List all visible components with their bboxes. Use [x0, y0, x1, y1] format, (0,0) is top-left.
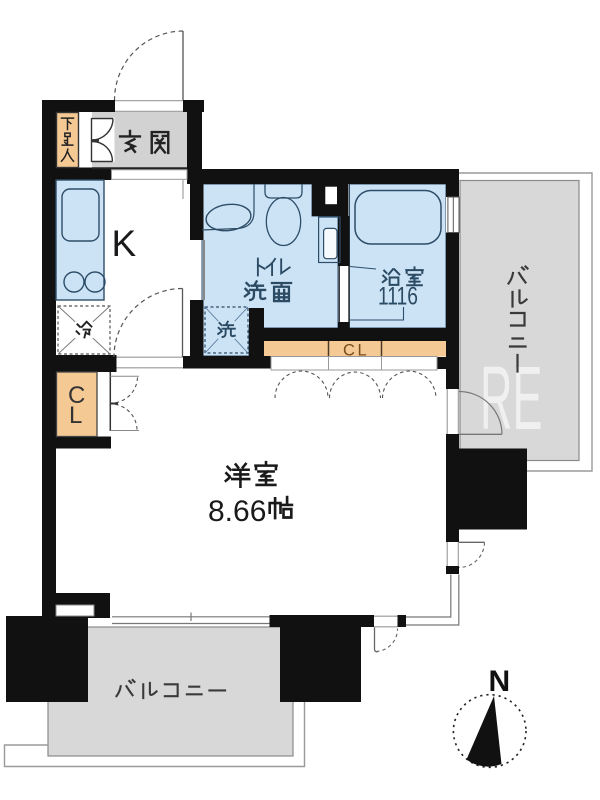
svg-text:8.66: 8.66 [208, 495, 266, 528]
svg-text:1116: 1116 [378, 282, 418, 310]
svg-text:K: K [112, 223, 137, 264]
svg-text:N: N [489, 665, 511, 698]
svg-text:L: L [358, 342, 367, 360]
svg-text:C: C [343, 342, 355, 360]
svg-text:L: L [69, 402, 82, 429]
